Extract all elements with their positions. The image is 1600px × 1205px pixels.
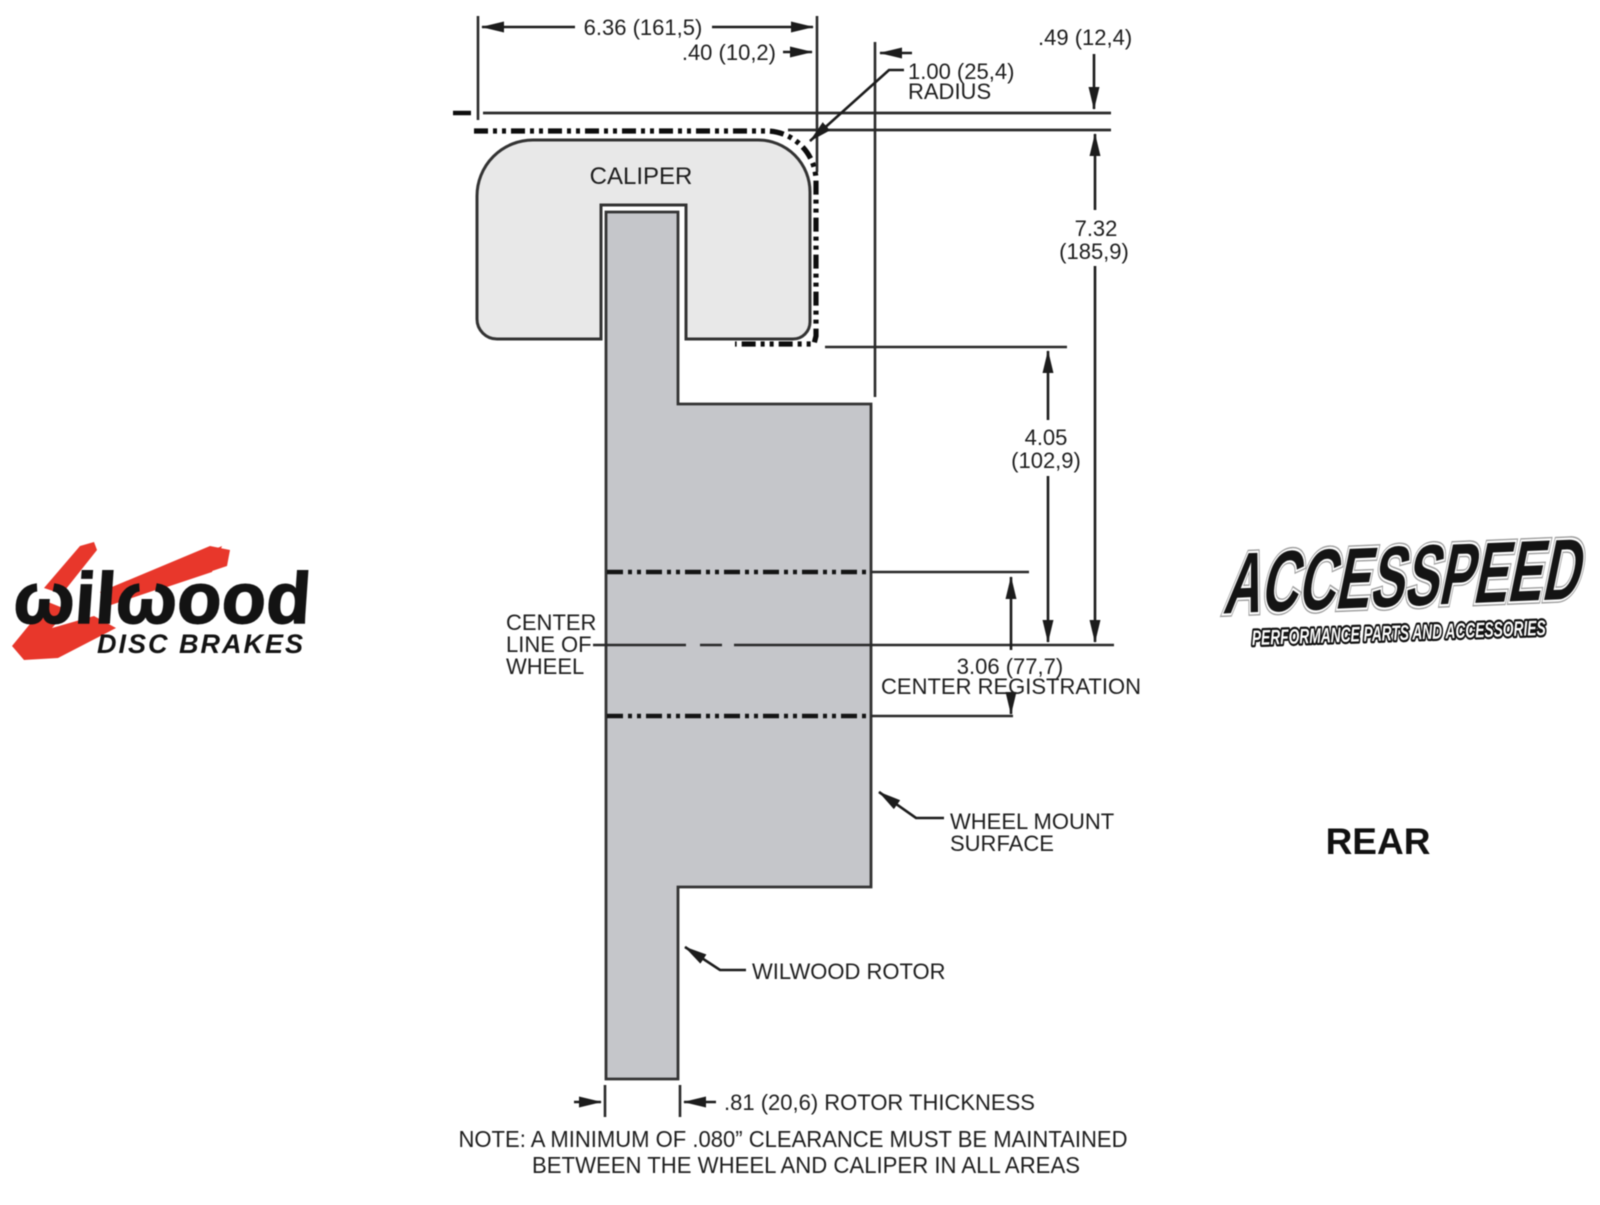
svg-text:NOTE: A MINIMUM OF .080” CLEAR: NOTE: A MINIMUM OF .080” CLEARANCE MUST … bbox=[459, 1126, 1128, 1152]
svg-text:(185,9): (185,9) bbox=[1059, 239, 1129, 264]
svg-text:REAR: REAR bbox=[1326, 821, 1431, 862]
svg-text:SURFACE: SURFACE bbox=[950, 831, 1054, 856]
svg-text:.49 (12,4): .49 (12,4) bbox=[1038, 25, 1132, 50]
svg-text:CALIPER: CALIPER bbox=[590, 163, 693, 190]
svg-text:CENTER REGISTRATION: CENTER REGISTRATION bbox=[881, 674, 1141, 699]
svg-text:4.05: 4.05 bbox=[1025, 425, 1068, 450]
svg-text:WHEEL: WHEEL bbox=[506, 654, 584, 679]
svg-text:(102,9): (102,9) bbox=[1011, 448, 1081, 473]
svg-text:RADIUS: RADIUS bbox=[908, 79, 991, 104]
svg-text:.40 (10,2): .40 (10,2) bbox=[682, 40, 776, 65]
svg-text:ωilωood: ωilωood bbox=[11, 559, 314, 639]
svg-text:DISC BRAKES: DISC BRAKES bbox=[97, 629, 305, 659]
svg-text:WILWOOD ROTOR: WILWOOD ROTOR bbox=[752, 959, 946, 984]
svg-text:.81 (20,6) ROTOR THICKNESS: .81 (20,6) ROTOR THICKNESS bbox=[724, 1090, 1035, 1115]
svg-text:7.32: 7.32 bbox=[1075, 216, 1118, 241]
svg-text:BETWEEN THE WHEEL AND CALIPER: BETWEEN THE WHEEL AND CALIPER IN ALL ARE… bbox=[532, 1152, 1080, 1178]
svg-text:6.36 (161,5): 6.36 (161,5) bbox=[584, 15, 703, 40]
svg-text:ACCESSPEED: ACCESSPEED bbox=[1218, 520, 1594, 632]
